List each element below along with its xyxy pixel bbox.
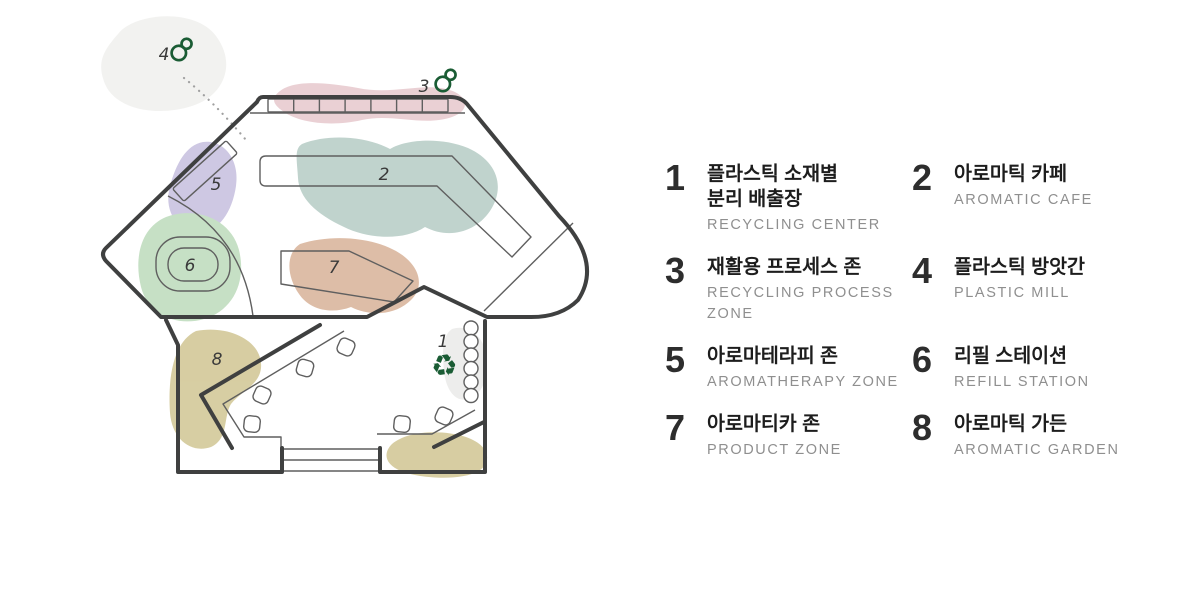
zone-label-4: 4 <box>159 45 170 65</box>
zone-label-7: 7 <box>329 258 340 278</box>
map-legend: 1 플라스틱 소재별 분리 배출장 RECYCLING CENTER 2 아로마… <box>665 161 1162 461</box>
stool <box>243 415 261 433</box>
legend-item-number: 6 <box>912 343 954 377</box>
stool <box>295 358 315 378</box>
legend-item-subtitle-en: RECYCLING CENTER <box>707 215 881 236</box>
right-bar-inner-edge <box>377 410 475 434</box>
zone-label-1: 1 <box>438 332 449 352</box>
stool <box>393 415 411 433</box>
legend-item-title-ko: 재활용 프로세스 존 <box>707 255 894 280</box>
legend-item-number: 8 <box>912 411 954 445</box>
legend-item-title-ko: 아로마틱 카페 <box>954 162 1093 187</box>
zone-label-5: 5 <box>211 175 222 195</box>
legend-item-title-ko: 아로마테라피 존 <box>707 344 899 369</box>
zone-label-3: 3 <box>419 77 430 97</box>
legend-item-subtitle-en: AROMATIC GARDEN <box>954 440 1120 461</box>
legend-item-subtitle-en: REFILL STATION <box>954 372 1090 393</box>
zone-2-blob <box>297 138 498 237</box>
legend-item-title-ko: 플라스틱 방앗간 <box>954 255 1085 280</box>
legend-item-5: 5 아로마테라피 존 AROMATHERAPY ZONE <box>665 343 912 393</box>
legend-item-3: 3 재활용 프로세스 존 RECYCLING PROCESS ZONE <box>665 254 912 325</box>
legend-item-number: 3 <box>665 254 707 288</box>
right-wing-diagonal <box>484 223 573 311</box>
legend-item-8: 8 아로마틱 가든 AROMATIC GARDEN <box>912 411 1162 461</box>
legend-item-number: 1 <box>665 161 707 195</box>
zone-label-8: 8 <box>212 350 223 370</box>
legend-item-subtitle-en: RECYCLING PROCESS ZONE <box>707 283 894 325</box>
legend-item-2: 2 아로마틱 카페 AROMATIC CAFE <box>912 161 1162 236</box>
legend-item-number: 7 <box>665 411 707 445</box>
recycle-icon: ♻ <box>429 348 460 384</box>
legend-item-subtitle-en: AROMATHERAPY ZONE <box>707 372 899 393</box>
stool <box>335 336 356 357</box>
legend-item-title-ko: 아로마틱 가든 <box>954 412 1120 437</box>
legend-item-subtitle-en: AROMATIC CAFE <box>954 190 1093 211</box>
legend-item-title-ko: 리필 스테이션 <box>954 344 1090 369</box>
zone-label-6: 6 <box>185 256 196 276</box>
legend-item-subtitle-en: PRODUCT ZONE <box>707 440 842 461</box>
legend-item-title-ko: 아로마티카 존 <box>707 412 842 437</box>
floor-plan-svg: ♻ 1 2 3 4 5 6 7 8 <box>0 0 640 540</box>
entrance-steps <box>284 449 378 471</box>
floor-plan-map: ♻ 1 2 3 4 5 6 7 8 <box>0 0 640 540</box>
legend-item-title-ko: 플라스틱 소재별 분리 배출장 <box>707 162 881 212</box>
stool <box>251 384 272 405</box>
legend-item-6: 6 리필 스테이션 REFILL STATION <box>912 343 1162 393</box>
legend-item-subtitle-en: PLASTIC MILL <box>954 283 1085 304</box>
legend-item-1: 1 플라스틱 소재별 분리 배출장 RECYCLING CENTER <box>665 161 912 236</box>
legend-item-number: 4 <box>912 254 954 288</box>
zone-label-2: 2 <box>379 165 390 185</box>
legend-item-number: 5 <box>665 343 707 377</box>
legend-item-4: 4 플라스틱 방앗간 PLASTIC MILL <box>912 254 1162 325</box>
legend-item-7: 7 아로마티카 존 PRODUCT ZONE <box>665 411 912 461</box>
legend-item-number: 2 <box>912 161 954 195</box>
